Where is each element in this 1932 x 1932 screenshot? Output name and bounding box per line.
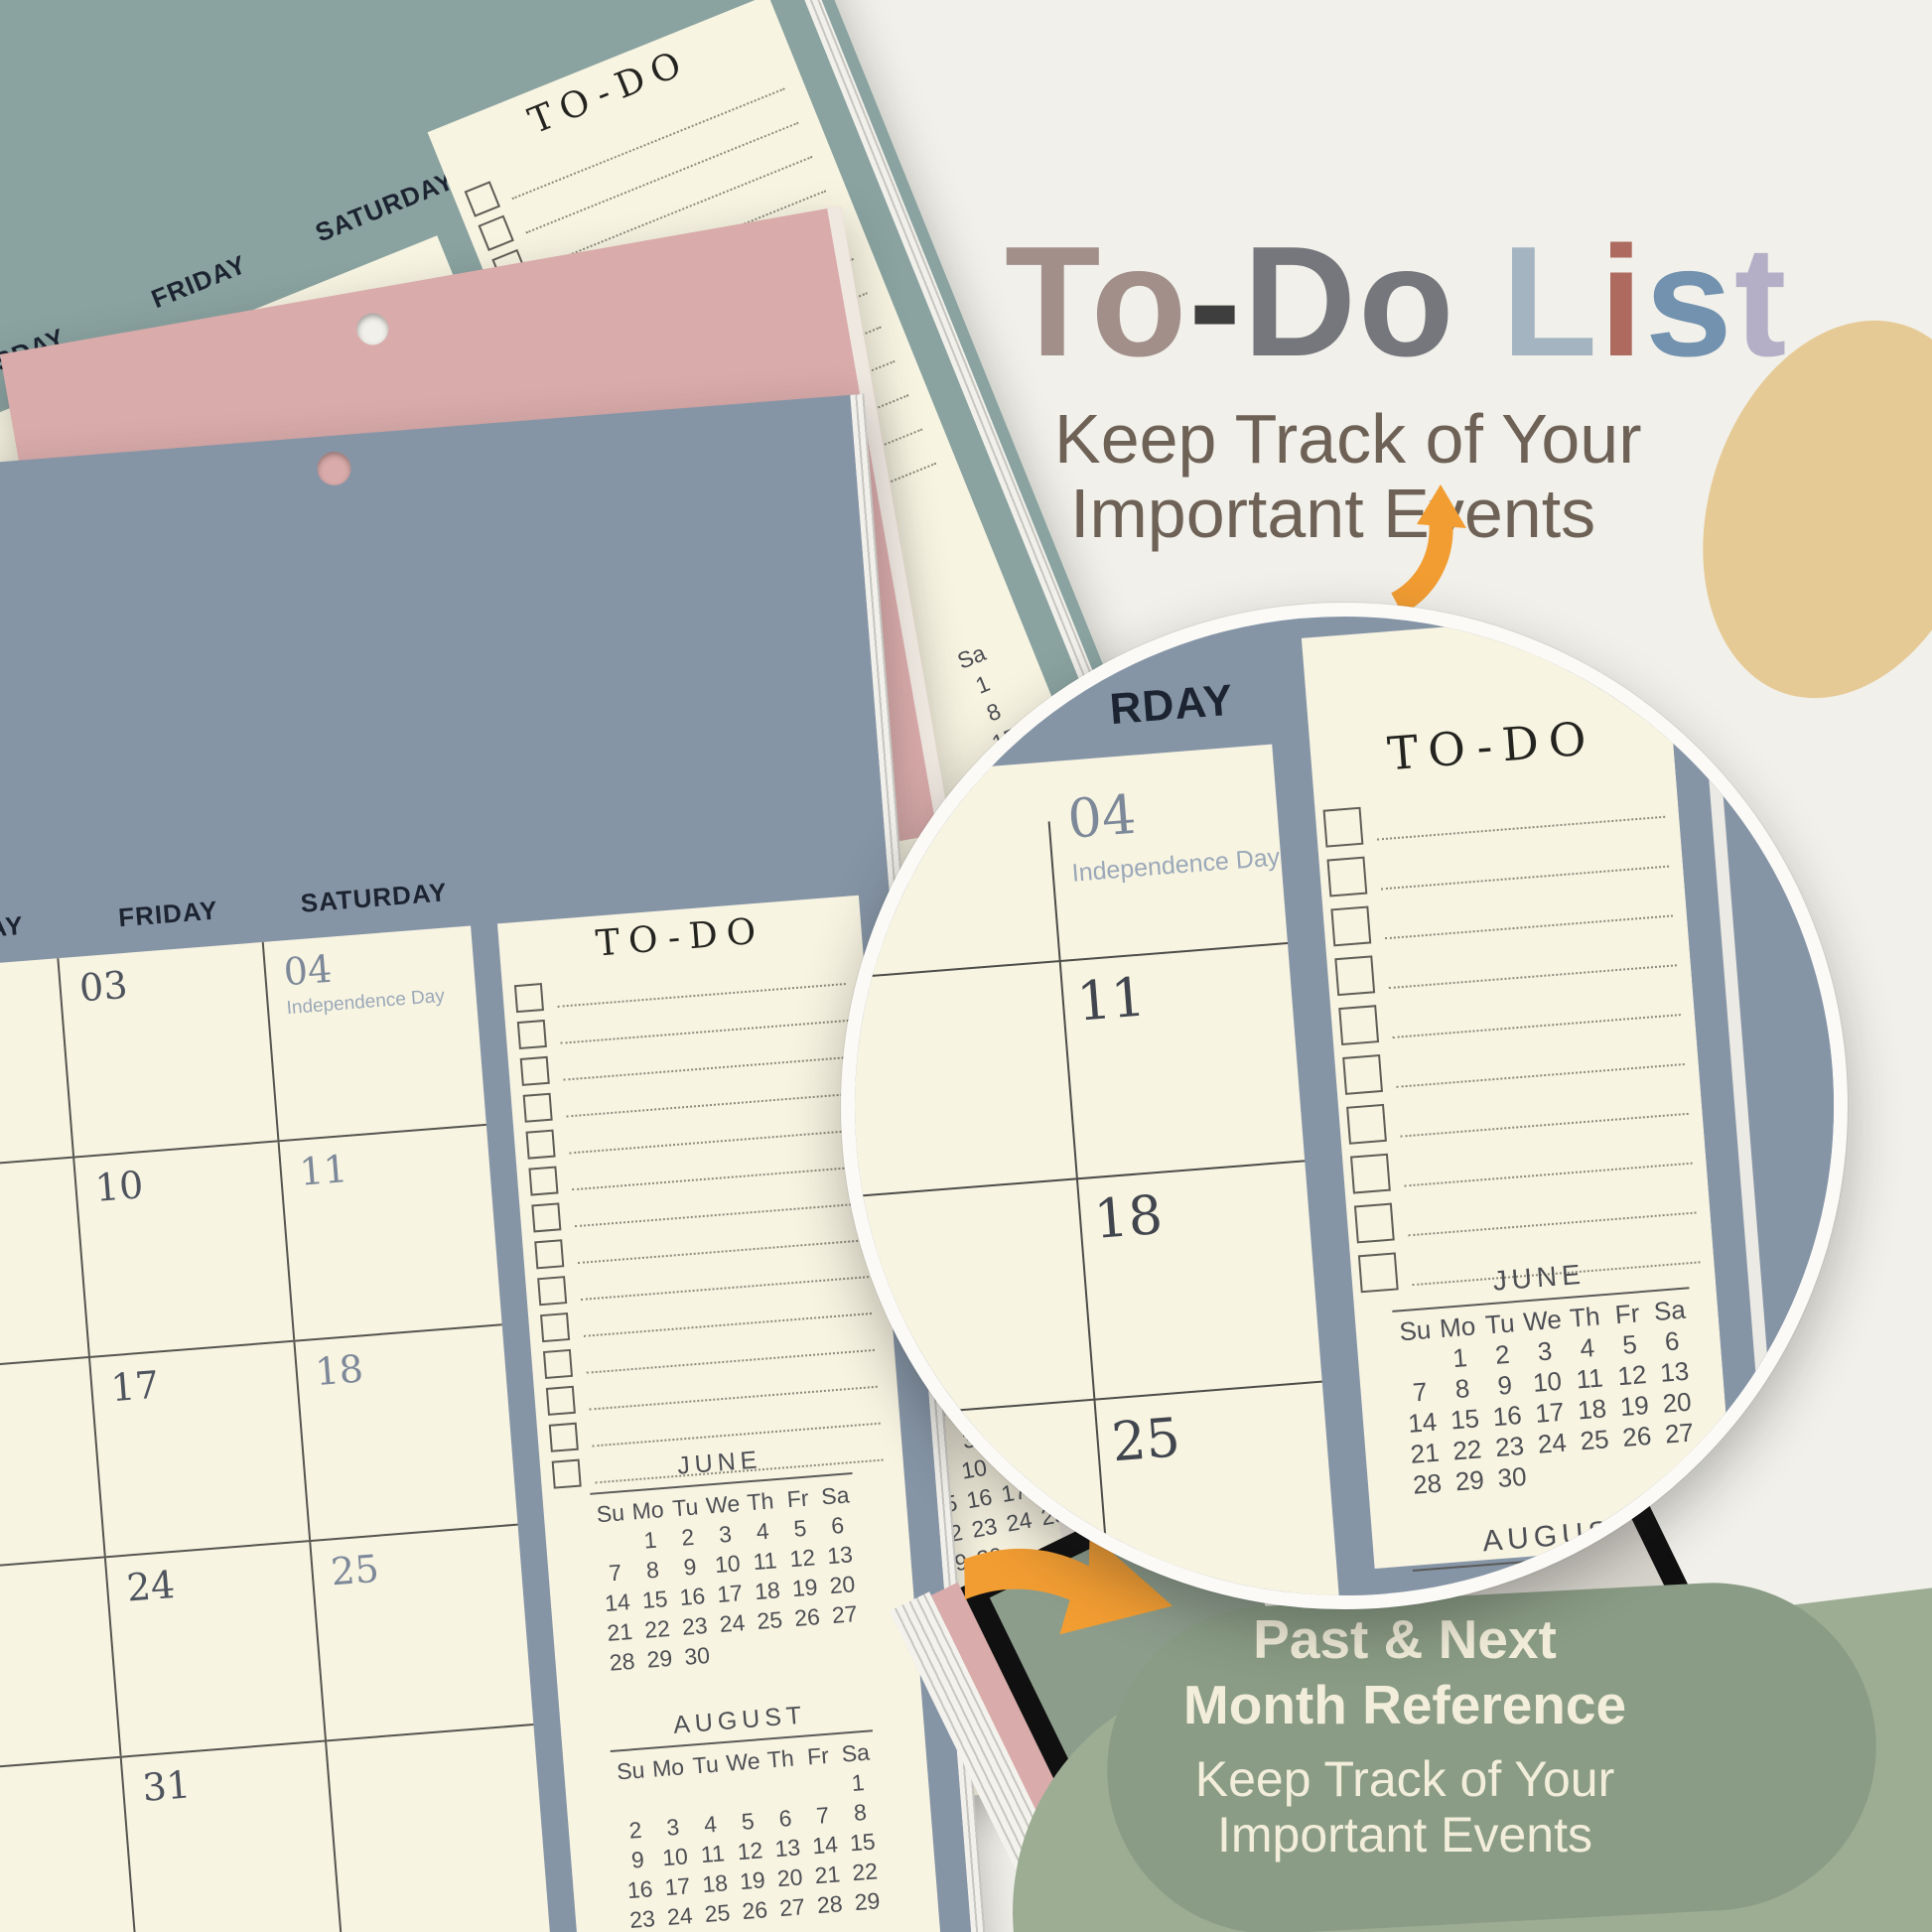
calendar-cell: We <box>723 1745 762 1778</box>
calendar-cell: 22 <box>1445 1434 1489 1467</box>
calendar-cell: 24 <box>660 1900 700 1932</box>
calendar-cell <box>614 1784 653 1817</box>
checkbox-icon <box>546 1386 576 1416</box>
calendar-cell <box>688 1778 728 1811</box>
calendar-cell: 22 <box>845 1856 885 1888</box>
orange-arrow-icon <box>1375 484 1499 609</box>
calendar-cell: 27 <box>825 1598 865 1631</box>
calendar-cell: 20 <box>770 1862 810 1894</box>
weekday-label: AY <box>0 910 25 946</box>
calendar-cell: 4 <box>690 1808 730 1841</box>
checkbox-icon <box>523 1093 553 1123</box>
calendar-cell: 9 <box>618 1844 657 1876</box>
calendar-cell: 25 <box>1572 1424 1616 1457</box>
magnifier-zoom-circle: RDAY 04 Independence Day 11 18 25 TO-DO <box>841 603 1848 1609</box>
grid-cell-saturday <box>325 1725 549 1932</box>
calendar-cell: 17 <box>657 1870 697 1903</box>
calendar-cell: 16 <box>672 1581 712 1613</box>
calendar-cell: 2 <box>668 1521 708 1554</box>
month-grid-sheet: 03 04 Independence Day 10 11 <box>0 925 580 1932</box>
badge-heading-line2: Month Reference <box>1107 1672 1703 1737</box>
checkbox-icon <box>1338 1005 1379 1045</box>
calendar-cell <box>827 1628 867 1661</box>
calendar-cell: Tu <box>665 1491 705 1524</box>
magnified-content: RDAY 04 Independence Day 11 18 25 TO-DO <box>841 603 1848 1609</box>
calendar-cell: 2 <box>1480 1338 1525 1372</box>
calendar-cell: Sa <box>836 1736 876 1769</box>
grid-cell-saturday: 25 <box>309 1526 533 1740</box>
calendar-cell <box>789 1631 829 1664</box>
badge-sub-line1: Keep Track of Your <box>1107 1751 1703 1807</box>
calendar-cell: Su <box>591 1497 630 1530</box>
calendar-cell <box>1575 1454 1619 1488</box>
calendar-cell: 20 <box>1655 1386 1700 1420</box>
calendar-cell: 6 <box>818 1509 858 1542</box>
calendar-cell: Su <box>1393 1313 1438 1347</box>
calendar-cell <box>715 1636 755 1669</box>
calendar-date: 04 <box>282 947 334 995</box>
grid-cell-saturday: 04 Independence Day <box>261 925 485 1140</box>
title-letter: T <box>1005 214 1091 389</box>
checkbox-icon <box>465 181 500 216</box>
calendar-cell <box>726 1775 765 1808</box>
calendar-cell: 3 <box>653 1811 693 1844</box>
calendar-date: 25 <box>330 1547 381 1594</box>
calendar-cell: We <box>703 1488 743 1521</box>
title-letter: D <box>1243 214 1358 389</box>
calendar-cell: 25 <box>697 1897 737 1930</box>
calendar-cell <box>763 1772 803 1805</box>
calendar-cell: 1 <box>630 1524 670 1557</box>
checkbox-icon <box>1326 857 1367 897</box>
calendar-cell: 2 <box>616 1814 655 1847</box>
grid-cell-partial <box>0 1558 120 1771</box>
calendar-date: 10 <box>93 1163 145 1210</box>
calendar-date: 11 <box>1074 965 1147 1033</box>
calendar-cell: 29 <box>639 1642 679 1675</box>
calendar-date: 25 <box>1109 1406 1181 1473</box>
checkbox-icon <box>514 983 544 1013</box>
calendar-cell: 15 <box>635 1584 675 1616</box>
calendar-cell: 17 <box>1527 1396 1572 1430</box>
calendar-cell: 11 <box>693 1838 733 1870</box>
calendar-cell: We <box>1520 1304 1565 1337</box>
grid-line <box>841 1380 1328 1423</box>
checkbox-icon <box>534 1239 564 1269</box>
badge-sub-line2: Important Events <box>1107 1807 1703 1863</box>
calendar-date: 11 <box>298 1147 349 1194</box>
calendar-date: 31 <box>141 1762 193 1810</box>
checkbox-icon <box>549 1423 579 1452</box>
checkbox-icon <box>528 1166 558 1195</box>
grid-line <box>841 942 1294 985</box>
title-letter: o <box>1358 214 1456 389</box>
subtitle-line2: Important Events <box>1054 477 1642 551</box>
calendar-cell <box>800 1769 840 1802</box>
calendar-cell: 26 <box>1614 1420 1659 1453</box>
calendar-cell: 26 <box>735 1894 774 1927</box>
calendar-cell: 18 <box>1570 1393 1614 1427</box>
calendar-cell: 3 <box>1522 1334 1567 1368</box>
calendar-cell <box>850 1915 890 1932</box>
calendar-cell: 29 <box>1448 1464 1492 1498</box>
calendar-cell: 14 <box>598 1587 637 1619</box>
calendar-cell: 24 <box>1530 1427 1575 1460</box>
calendar-cell: 19 <box>733 1864 772 1897</box>
product-marketing-image: RSDAY FRIDAY SATURDAY 25 TO-DO <box>0 0 1932 1932</box>
calendar-cell: 7 <box>596 1557 635 1589</box>
calendar-cell: 29 <box>847 1885 887 1918</box>
calendar-cell: 13 <box>767 1832 807 1864</box>
calendar-date: 04 <box>1065 783 1138 851</box>
calendar-cell: 16 <box>1485 1399 1530 1433</box>
calendar-cell: 23 <box>1487 1430 1532 1463</box>
calendar-cell: 5 <box>1607 1328 1652 1362</box>
calendar-cell: 28 <box>1405 1467 1449 1501</box>
calendar-cell: 9 <box>670 1551 710 1584</box>
title-letter: s <box>1645 214 1734 389</box>
todo-checklist <box>1314 776 1715 1300</box>
checkbox-icon <box>537 1276 567 1306</box>
grid-cell-saturday: 18 <box>293 1325 517 1540</box>
calendar-cell: 3 <box>705 1518 745 1551</box>
calendar-cell: Sa <box>815 1479 855 1512</box>
calendar-cell: 1 <box>838 1766 878 1799</box>
calendar-cell: 16 <box>621 1873 660 1906</box>
calendar-cell: 12 <box>1609 1358 1654 1392</box>
calendar-cell <box>650 1781 690 1814</box>
title-letter: L <box>1501 214 1599 389</box>
calendar-cell: 5 <box>728 1805 767 1838</box>
calendar-cell: 12 <box>731 1835 770 1867</box>
title-letter: - <box>1188 214 1243 389</box>
calendar-cell: Fr <box>1604 1298 1649 1331</box>
calendar-cell <box>1532 1457 1577 1491</box>
calendar-cell: 14 <box>1400 1406 1445 1440</box>
calendar-cell <box>593 1527 632 1560</box>
calendar-cell: 6 <box>765 1802 805 1835</box>
mini-calendar-grid: SuMoTuWeThFrSa12345678910111213141516171… <box>611 1736 890 1932</box>
feature-badge: Past & Next Month Reference Keep Track o… <box>1107 1606 1703 1863</box>
calendar-date: 18 <box>314 1346 365 1394</box>
weekday-label-partial: RDAY <box>1108 676 1235 736</box>
weekday-label: FRIDAY <box>117 895 219 933</box>
checkbox-icon <box>1342 1054 1383 1095</box>
checkbox-icon <box>1330 905 1371 946</box>
calendar-cell: 8 <box>632 1554 672 1587</box>
calendar-cell: 10 <box>655 1841 695 1873</box>
calendar-cell: 30 <box>1489 1460 1534 1494</box>
calendar-cell: Fr <box>798 1739 838 1772</box>
title-letter: o <box>1091 214 1189 389</box>
calendar-cell: Fr <box>778 1482 818 1515</box>
calendar-cell: 17 <box>710 1578 750 1610</box>
calendar-cell: Th <box>760 1742 800 1775</box>
grid-cell-partial <box>0 1358 104 1572</box>
title-letter: t <box>1734 214 1789 389</box>
weekday-label: SATURDAY <box>300 877 449 919</box>
calendar-cell: 12 <box>782 1542 822 1575</box>
badge-heading-line1: Past & Next <box>1107 1606 1703 1672</box>
calendar-cell: 11 <box>745 1545 784 1578</box>
calendar-cell: Mo <box>1436 1311 1480 1344</box>
calendar-cell: 21 <box>600 1615 639 1648</box>
calendar-cell: 1 <box>1438 1341 1482 1375</box>
calendar-date: 18 <box>1092 1183 1165 1251</box>
todo-heading: TO-DO <box>1309 705 1674 786</box>
subtitle-line1: Keep Track of Your <box>1054 402 1642 477</box>
mini-calendar-grid: SuMoTuWeThFrSa12345678910111213141516171… <box>591 1479 867 1678</box>
todo-checklist <box>502 954 904 1495</box>
mini-calendar-title: AUGUST <box>1410 1508 1710 1572</box>
calendar-cell: 25 <box>750 1604 789 1637</box>
checkbox-icon <box>1350 1154 1391 1194</box>
calendar-cell: 15 <box>843 1826 883 1859</box>
checkbox-icon <box>526 1130 556 1160</box>
calendar-cell: Th <box>741 1485 780 1518</box>
calendar-date: 03 <box>77 963 129 1011</box>
calendar-cell: 24 <box>712 1607 752 1640</box>
calendar-cell <box>774 1921 814 1932</box>
checkbox-icon <box>540 1312 570 1342</box>
title-letter: i <box>1599 214 1645 389</box>
weekday-label: FRIDAY <box>147 249 251 315</box>
checkbox-icon <box>517 1020 547 1049</box>
calendar-cell: Th <box>1563 1301 1607 1334</box>
title-letter <box>1456 214 1502 389</box>
checkbox-icon <box>1334 955 1375 996</box>
calendar-cell: 28 <box>603 1645 642 1678</box>
magnified-todo-strip: TO-DO <box>1302 610 1736 1569</box>
calendar-date: 24 <box>125 1563 177 1610</box>
calendar-cell: 4 <box>1565 1331 1609 1365</box>
checkbox-icon <box>1354 1203 1395 1244</box>
calendar-cell: 21 <box>807 1859 847 1891</box>
calendar-cell: Sa <box>1647 1294 1692 1327</box>
calendar-cell: Mo <box>628 1494 668 1527</box>
mini-calendar-june: JUNE SuMoTuWeThFrSa123456789101112131415… <box>1389 1250 1704 1501</box>
calendar-cell <box>1395 1344 1440 1378</box>
checkbox-icon <box>1323 807 1364 848</box>
page-title: To-Do List <box>1005 223 1788 380</box>
magnified-month-cells: 04 Independence Day 11 18 25 <box>841 744 1352 1609</box>
calendar-cell: 10 <box>708 1548 748 1581</box>
calendar-cell: 7 <box>803 1799 843 1832</box>
calendar-cell: 23 <box>622 1903 662 1932</box>
calendar-cell: 9 <box>1482 1369 1527 1403</box>
calendar-cell: Tu <box>686 1748 726 1781</box>
calendar-cell <box>1617 1450 1662 1484</box>
calendar-cell: 10 <box>1525 1365 1570 1399</box>
mini-calendar-june: JUNE SuMoTuWeThFrSa123456789101112131415… <box>588 1439 868 1678</box>
grid-cell-saturday: 11 <box>277 1126 501 1340</box>
checkbox-icon <box>1346 1104 1387 1145</box>
calendar-cell: 7 <box>1398 1375 1443 1409</box>
subtitle: Keep Track of Your Important Events <box>1054 402 1642 551</box>
calendar-cell: 18 <box>695 1867 735 1900</box>
checkbox-icon <box>552 1459 582 1489</box>
calendar-cell: 26 <box>787 1601 827 1634</box>
calendar-cell: 30 <box>677 1639 717 1672</box>
checkbox-icon <box>520 1056 550 1086</box>
calendar-cell: 15 <box>1443 1403 1487 1437</box>
calendar-cell: 8 <box>840 1796 880 1829</box>
calendar-cell: 28 <box>810 1888 850 1921</box>
calendar-cell: Su <box>611 1754 650 1787</box>
calendar-cell: Tu <box>1477 1308 1522 1341</box>
calendar-cell: 27 <box>772 1891 812 1924</box>
hang-hole <box>354 311 391 347</box>
calendar-cell: Mo <box>648 1751 688 1784</box>
calendar-date: 17 <box>109 1363 161 1411</box>
checkbox-icon <box>478 215 513 251</box>
mini-calendar-august: AUGUST SuMoTuWeThFrSa1234567891011121314… <box>608 1696 890 1932</box>
calendar-cell: 22 <box>637 1612 677 1645</box>
holiday-label: Independence Day <box>1071 843 1282 888</box>
calendar-cell: 19 <box>785 1572 825 1604</box>
calendar-cell: 5 <box>780 1512 820 1545</box>
calendar-cell: 27 <box>1657 1417 1702 1450</box>
checkbox-icon <box>531 1202 561 1232</box>
calendar-cell: 21 <box>1403 1437 1448 1470</box>
grid-cell-partial <box>0 1758 136 1932</box>
grid-cell-friday: 10 <box>73 1142 293 1356</box>
checkbox-icon <box>543 1349 573 1379</box>
calendar-cell <box>1659 1448 1704 1481</box>
calendar-cell: 6 <box>1650 1324 1695 1358</box>
grid-cell-friday: 03 <box>58 942 277 1157</box>
calendar-cell: 13 <box>1652 1355 1697 1389</box>
hang-hole <box>316 451 352 487</box>
calendar-cell: 23 <box>675 1610 715 1643</box>
month-grid: 03 04 Independence Day 10 11 <box>0 925 549 1932</box>
calendar-cell <box>812 1918 852 1932</box>
calendar-cell: 11 <box>1568 1362 1612 1396</box>
mini-calendar-grid: SuMoTuWeThFrSa12345678910111213141516171… <box>1393 1294 1705 1501</box>
calendar-cell: 14 <box>805 1829 845 1862</box>
calendar-cell <box>753 1633 792 1666</box>
calendar-cell: 18 <box>748 1575 787 1607</box>
calendar-cell: 4 <box>743 1515 782 1548</box>
grid-cell-friday: 17 <box>88 1342 308 1557</box>
calendar-cell: 8 <box>1440 1372 1484 1406</box>
grid-cell-friday: 31 <box>120 1742 340 1932</box>
calendar-cell: 19 <box>1612 1389 1657 1423</box>
grid-cell-friday: 24 <box>104 1542 324 1756</box>
